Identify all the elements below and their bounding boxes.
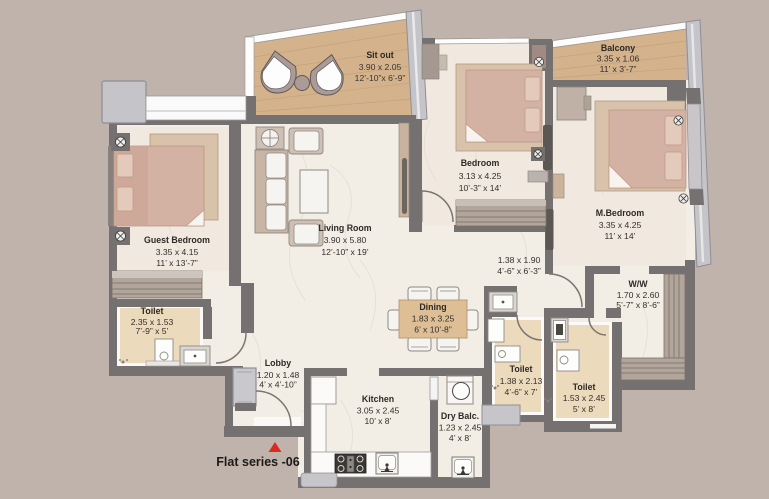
svg-text:3.13 x 4.25: 3.13 x 4.25	[459, 171, 502, 181]
svg-text:1.83 x 3.25: 1.83 x 3.25	[412, 314, 455, 324]
svg-text:11’ x 13’-7”: 11’ x 13’-7”	[156, 258, 198, 268]
svg-text:6’ x 10’-8”: 6’ x 10’-8”	[414, 325, 452, 335]
svg-text:4’ x 4’-10”: 4’ x 4’-10”	[259, 380, 297, 390]
svg-text:4’ x 8’: 4’ x 8’	[449, 433, 471, 443]
svg-text:Dining: Dining	[419, 302, 446, 312]
svg-text:4’-6” x 7’: 4’-6” x 7’	[505, 387, 538, 397]
svg-text:Balcony: Balcony	[601, 43, 635, 53]
svg-text:Toilet: Toilet	[141, 306, 164, 316]
svg-text:12’-10”x 6’-9”: 12’-10”x 6’-9”	[355, 73, 406, 83]
svg-text:11’ x 3’-7”: 11’ x 3’-7”	[600, 64, 637, 74]
svg-text:Toilet: Toilet	[573, 382, 596, 392]
svg-text:5’ x 8’: 5’ x 8’	[573, 404, 595, 414]
svg-text:3.90 x 2.05: 3.90 x 2.05	[359, 62, 402, 72]
svg-text:Living Room: Living Room	[318, 223, 371, 233]
svg-text:3.35 x 1.06: 3.35 x 1.06	[597, 54, 640, 64]
svg-text:1.38 x 2.13: 1.38 x 2.13	[500, 376, 543, 386]
svg-text:Flat series -06: Flat series -06	[216, 455, 299, 469]
svg-text:3.05 x 2.45: 3.05 x 2.45	[357, 406, 400, 416]
svg-text:M.Bedroom: M.Bedroom	[596, 208, 645, 218]
svg-text:5’-7” x 8’-6”: 5’-7” x 8’-6”	[616, 300, 660, 310]
svg-text:4’-6” x 6’-3”: 4’-6” x 6’-3”	[497, 266, 541, 276]
svg-text:1.23 x 2.45: 1.23 x 2.45	[439, 423, 482, 433]
svg-text:3.35 x 4.25: 3.35 x 4.25	[599, 220, 642, 230]
svg-text:1.53 x 2.45: 1.53 x 2.45	[563, 393, 606, 403]
svg-text:10’-3” x 14’: 10’-3” x 14’	[459, 183, 502, 193]
svg-text:Lobby: Lobby	[265, 358, 291, 368]
svg-text:Guest Bedroom: Guest Bedroom	[144, 235, 210, 245]
svg-text:3.35 x 4.15: 3.35 x 4.15	[156, 247, 199, 257]
svg-text:Toilet: Toilet	[510, 364, 533, 374]
svg-text:11’ x 14’: 11’ x 14’	[604, 231, 635, 241]
svg-text:1.70 x 2.60: 1.70 x 2.60	[617, 290, 660, 300]
svg-text:1.38 x 1.90: 1.38 x 1.90	[498, 255, 541, 265]
svg-text:12’-10” x 19’: 12’-10” x 19’	[321, 247, 368, 257]
svg-text:1.20 x 1.48: 1.20 x 1.48	[257, 370, 300, 380]
svg-text:10’ x 8’: 10’ x 8’	[365, 416, 392, 426]
svg-text:Sit out: Sit out	[366, 50, 393, 60]
svg-text:Bedroom: Bedroom	[461, 158, 500, 168]
svg-text:7’-9” x 5’: 7’-9” x 5’	[136, 326, 169, 336]
svg-text:3.90 x 5.80: 3.90 x 5.80	[324, 235, 367, 245]
svg-text:Kitchen: Kitchen	[362, 394, 394, 404]
svg-text:W/W: W/W	[628, 279, 648, 289]
svg-text:Dry Balc.: Dry Balc.	[441, 411, 479, 421]
